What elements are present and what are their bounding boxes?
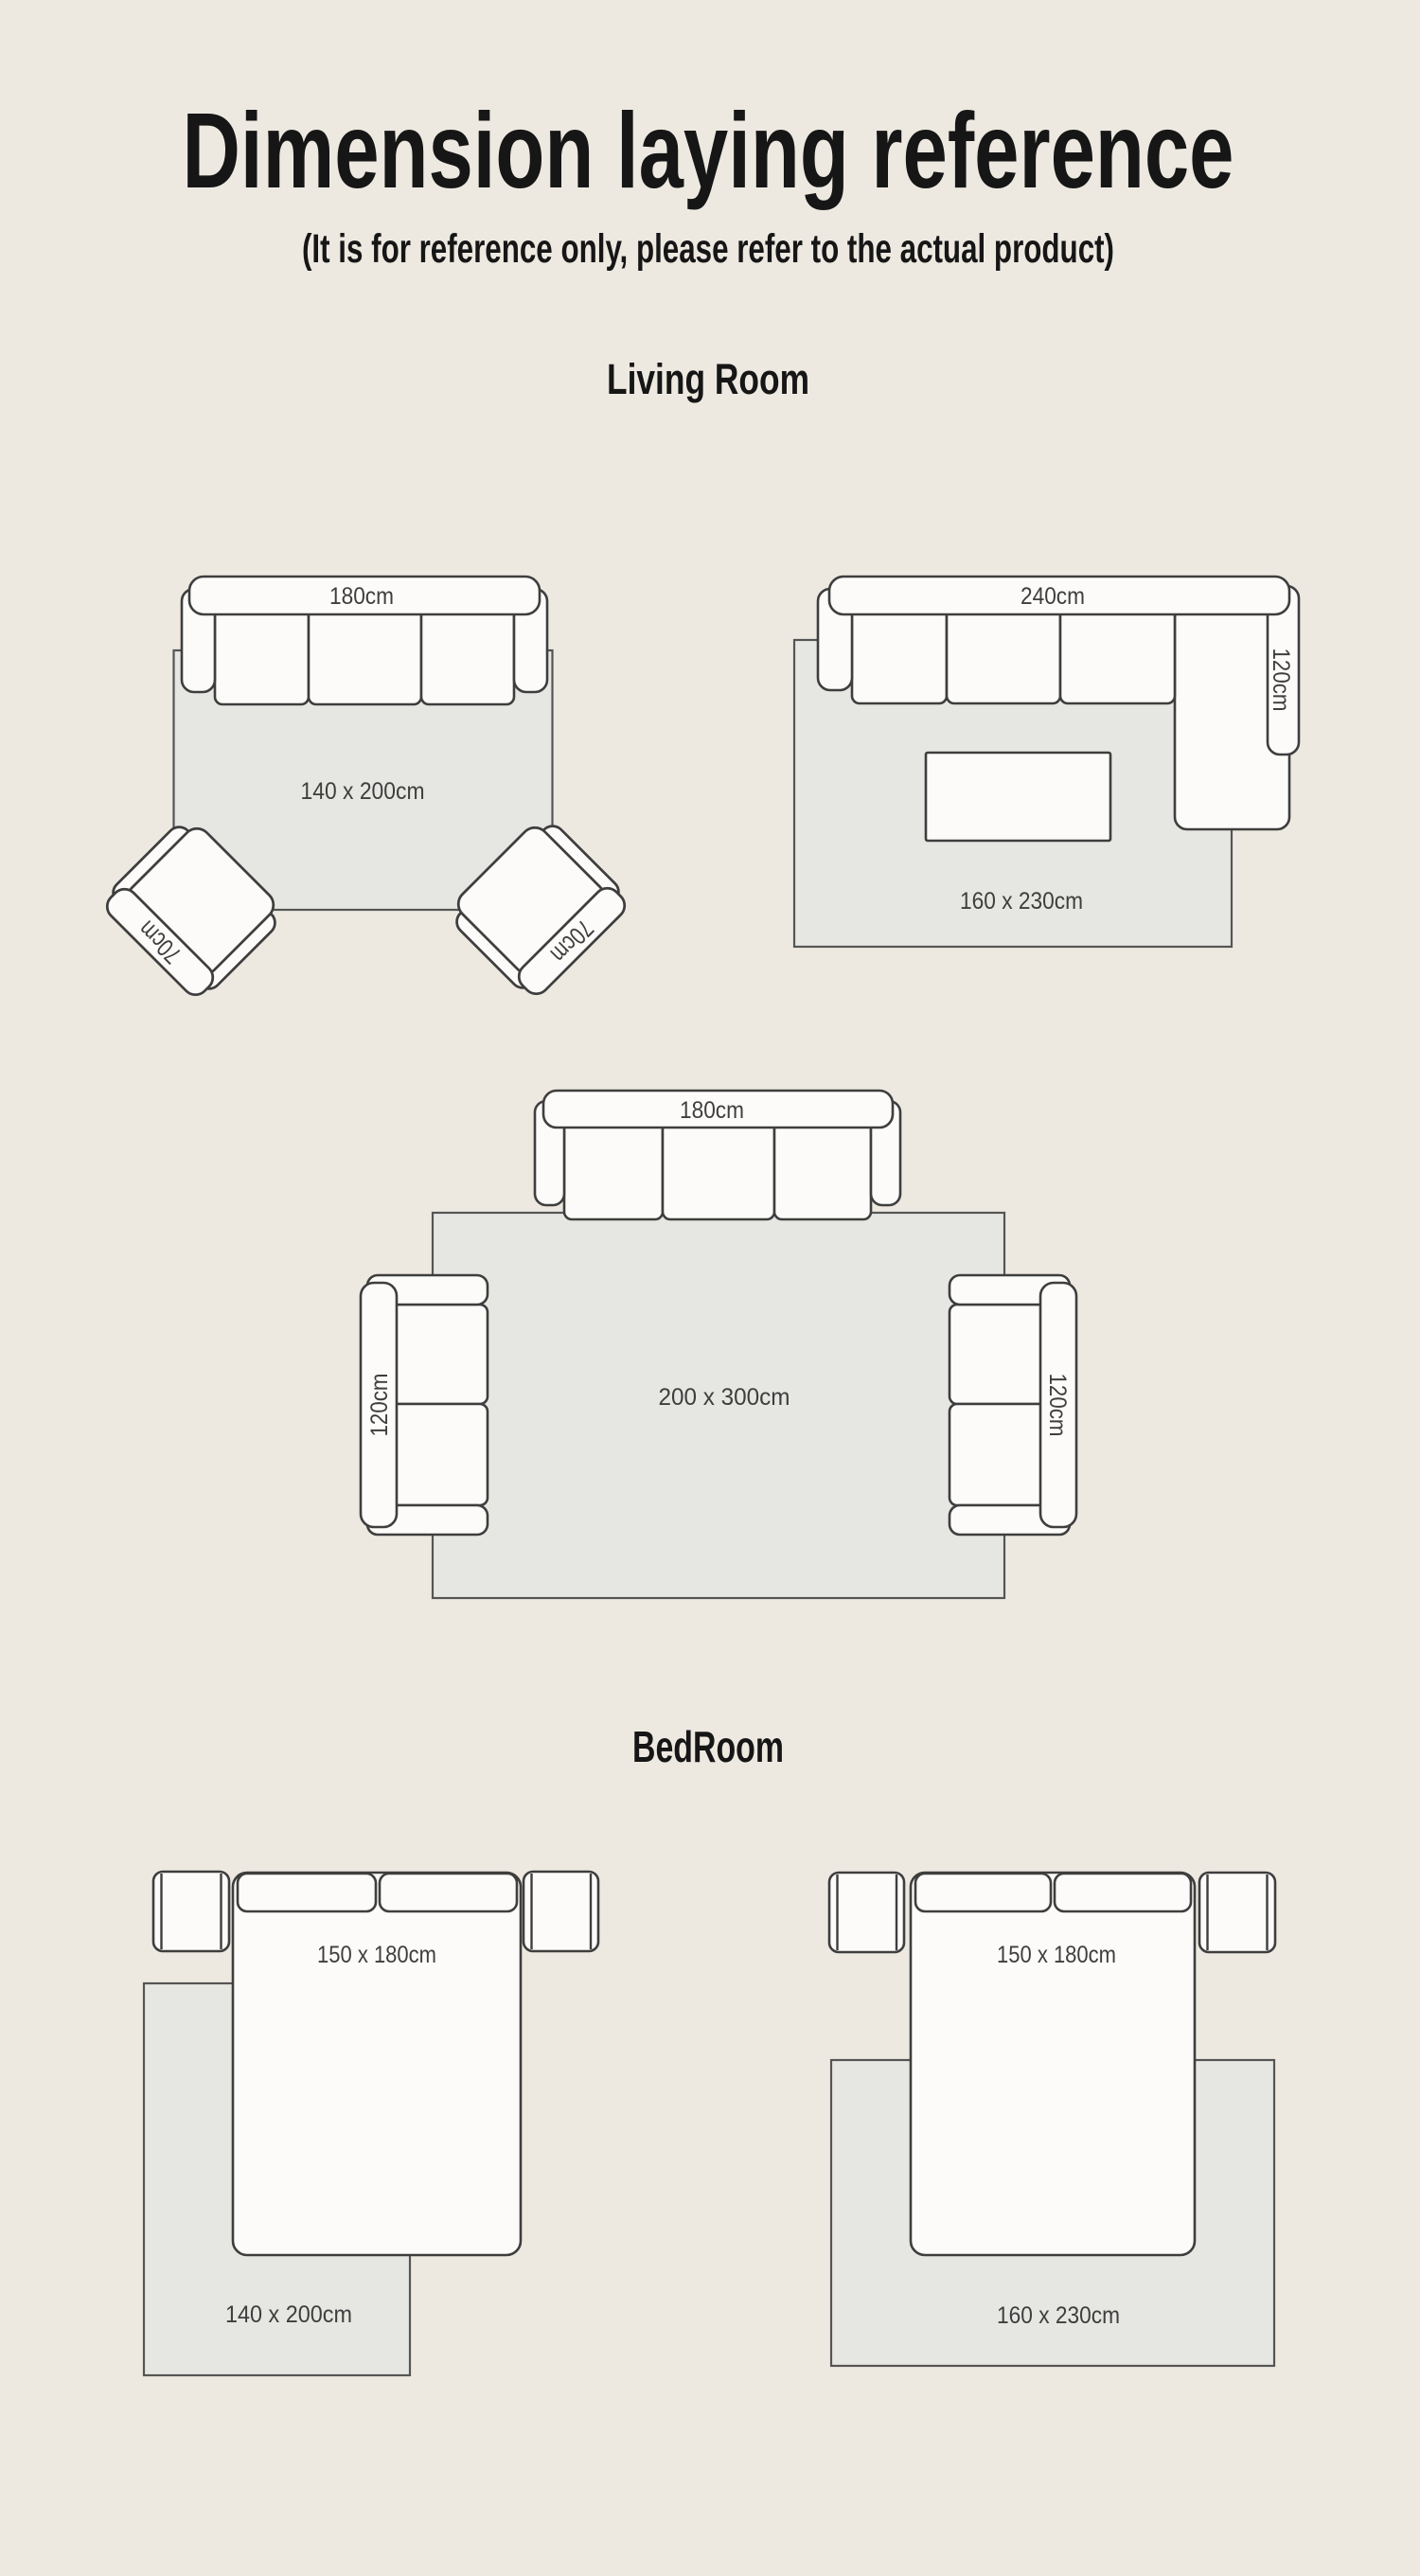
svg-text:180cm: 180cm [680, 1097, 744, 1124]
svg-text:150 x 180cm: 150 x 180cm [997, 1942, 1116, 1968]
svg-text:120cm: 120cm [366, 1374, 393, 1437]
svg-text:Dimension laying reference: Dimension laying reference [183, 91, 1234, 210]
svg-text:140 x 200cm: 140 x 200cm [225, 2301, 352, 2328]
svg-text:(It is for reference only, ple: (It is for reference only, please refer … [302, 226, 1114, 272]
svg-text:120cm: 120cm [1044, 1374, 1071, 1437]
svg-text:240cm: 240cm [1021, 583, 1085, 610]
svg-text:150 x 180cm: 150 x 180cm [317, 1942, 436, 1968]
svg-text:200 x 300cm: 200 x 300cm [659, 1384, 790, 1411]
svg-text:140 x 200cm: 140 x 200cm [301, 778, 425, 805]
svg-text:180cm: 180cm [329, 583, 394, 610]
svg-text:160 x 230cm: 160 x 230cm [997, 2302, 1120, 2329]
svg-text:Living Room: Living Room [607, 355, 809, 403]
svg-text:120cm: 120cm [1268, 648, 1294, 712]
svg-text:BedRoom: BedRoom [632, 1722, 784, 1771]
svg-text:160 x 230cm: 160 x 230cm [960, 888, 1083, 915]
